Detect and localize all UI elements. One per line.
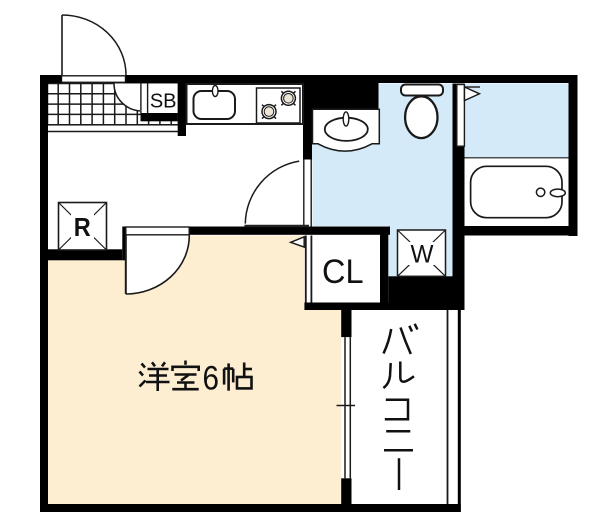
svg-text:SB: SB	[150, 90, 177, 112]
svg-text:R: R	[74, 214, 91, 242]
svg-text:6: 6	[202, 360, 219, 398]
svg-text:W: W	[411, 241, 434, 269]
svg-text:CL: CL	[322, 253, 364, 291]
